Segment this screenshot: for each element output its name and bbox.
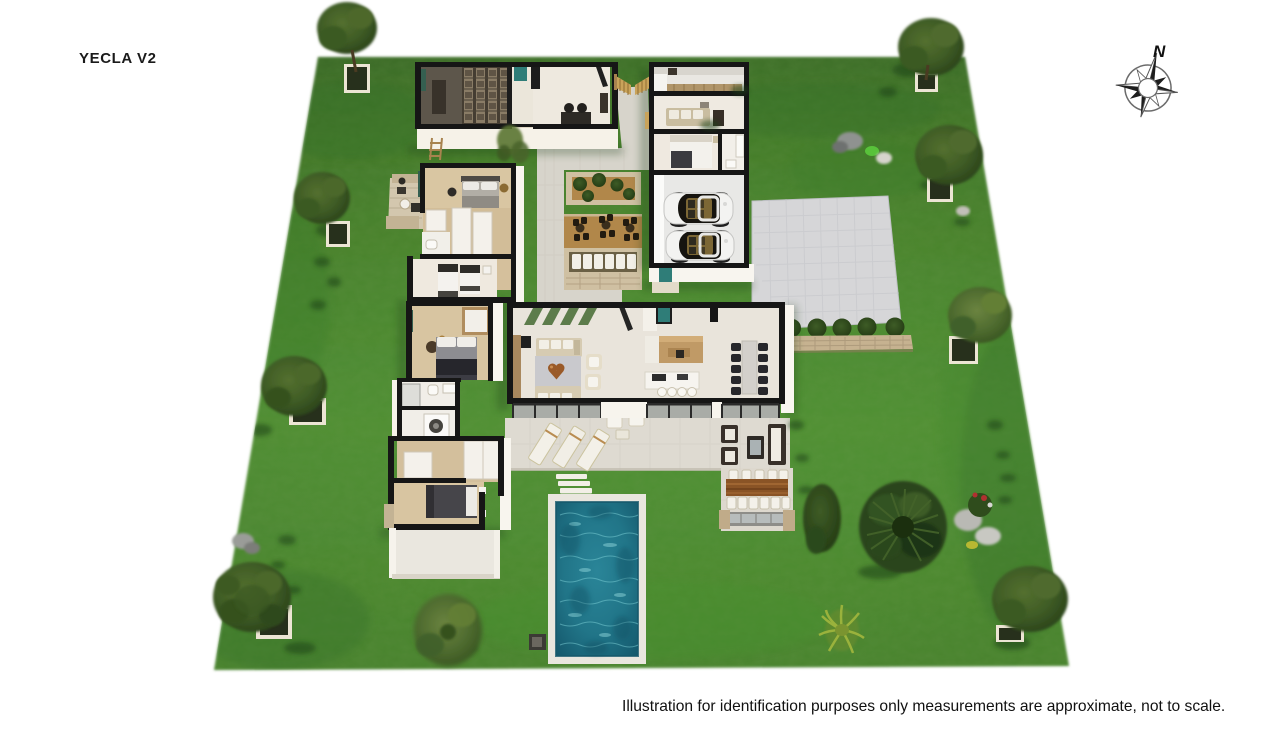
svg-text:N: N (1153, 42, 1166, 61)
svg-text:Illustration for identificatio: Illustration for identification purposes… (622, 698, 1225, 715)
svg-text:YECLA V2: YECLA V2 (79, 50, 157, 67)
